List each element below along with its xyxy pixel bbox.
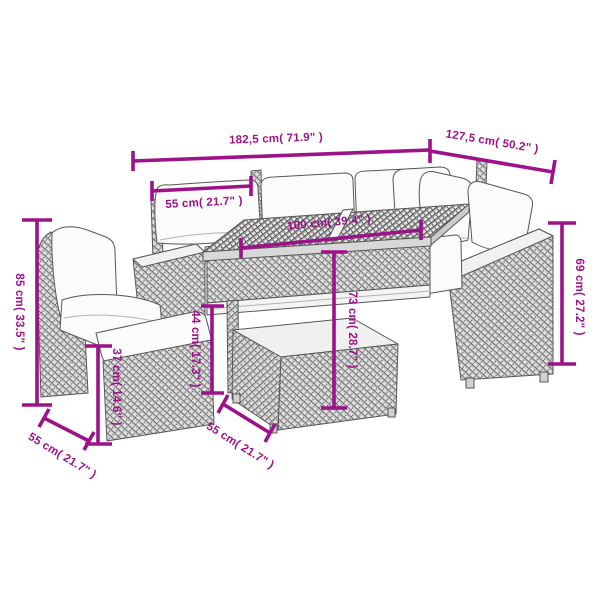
dimension-lines <box>0 0 600 600</box>
dim-line-seat-height <box>85 346 112 444</box>
seat-height-label: 37 cm( 14.6" ) <box>110 348 122 425</box>
table-height-label: 73 cm( 28.7" ) <box>346 291 358 368</box>
product-dimension-diagram: 182,5 cm( 71.9" ) 127,5 cm( 50.2" ) 55 c… <box>0 0 600 600</box>
arm-height-label: 69 cm( 27.2" ) <box>573 258 585 335</box>
dim-line-shelf-height <box>201 306 224 393</box>
dim-line-table-height <box>321 252 347 408</box>
dim-line-right-width <box>430 151 555 184</box>
back-height-label: 85 cm( 33.5" ) <box>13 273 25 350</box>
dim-line-back-height <box>22 220 52 405</box>
shelf-height-label: 44 cm( 17.3" ) <box>189 310 201 387</box>
dim-line-arm-height <box>548 223 576 364</box>
